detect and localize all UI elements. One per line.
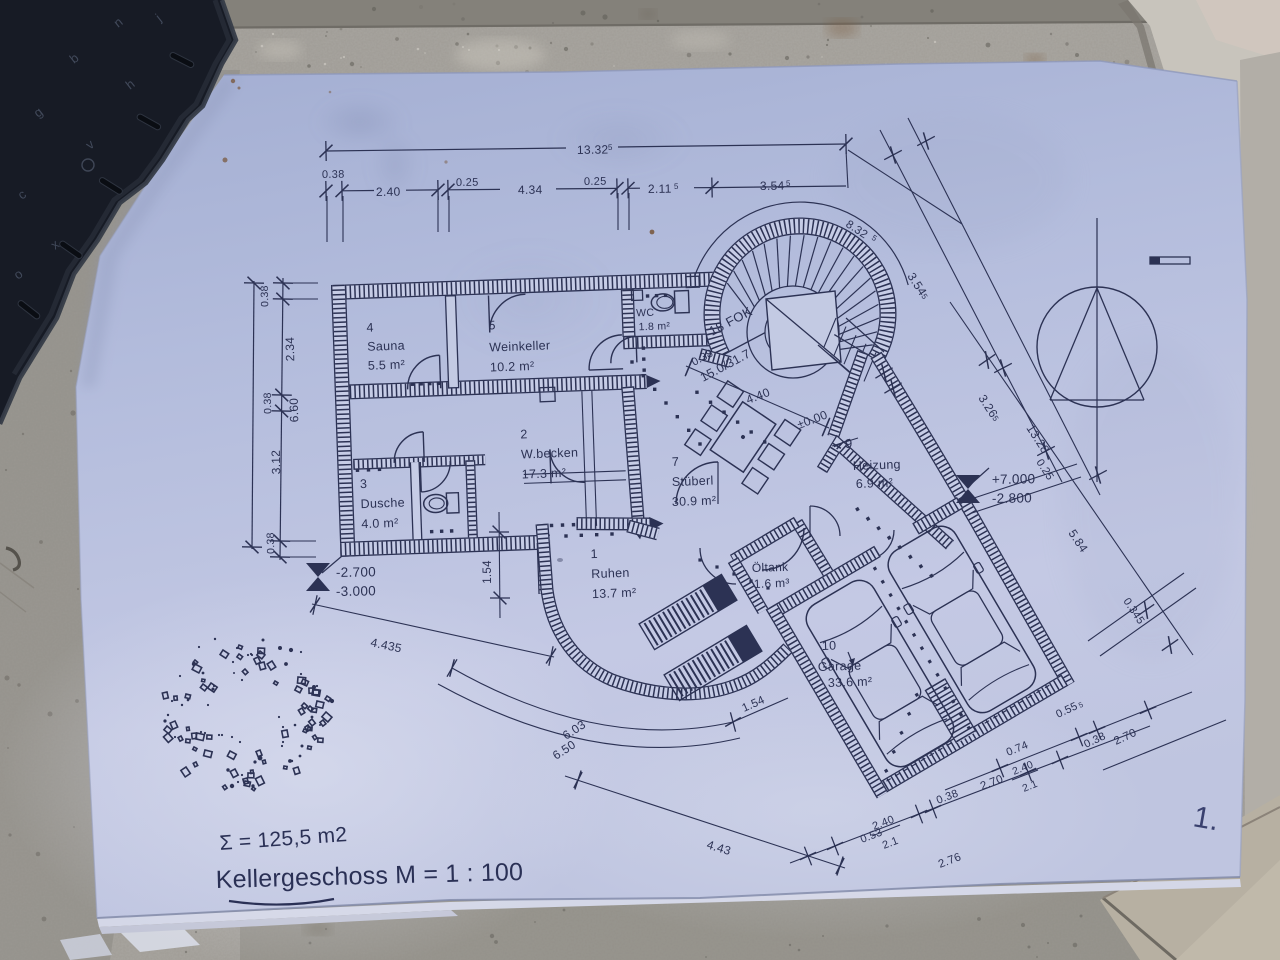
svg-text:5.5 m²: 5.5 m² [368, 357, 406, 372]
svg-text:33.6 m²: 33.6 m² [828, 674, 873, 690]
svg-text:4: 4 [366, 321, 374, 335]
svg-text:2: 2 [520, 427, 528, 441]
svg-text:2.11: 2.11 [648, 182, 672, 196]
svg-text:0.38: 0.38 [322, 169, 345, 181]
svg-text:0.38: 0.38 [259, 285, 271, 307]
svg-text:Garage: Garage [818, 658, 862, 674]
svg-text:10.2 m²: 10.2 m² [490, 359, 535, 375]
svg-text:9: 9 [845, 436, 853, 451]
svg-text:2.40: 2.40 [376, 185, 401, 199]
svg-text:0.25: 0.25 [584, 176, 607, 188]
svg-text:6.9 m²: 6.9 m² [856, 476, 894, 491]
svg-text:Heizung: Heizung [853, 457, 901, 473]
svg-text:1.6 m³: 1.6 m³ [754, 576, 790, 591]
svg-text:-2.800: -2.800 [992, 490, 1032, 506]
svg-text:W.becken: W.becken [521, 445, 579, 461]
svg-text:17.3 m²: 17.3 m² [521, 466, 566, 482]
svg-text:13.7 m²: 13.7 m² [592, 586, 637, 602]
svg-text:Stüberl: Stüberl [672, 474, 714, 489]
svg-text:Ruhen: Ruhen [591, 566, 630, 581]
svg-text:3.12: 3.12 [269, 450, 283, 475]
svg-text:0.38: 0.38 [262, 392, 274, 414]
svg-text:Weinkeller: Weinkeller [489, 338, 551, 354]
svg-text:30.9 m²: 30.9 m² [672, 493, 717, 509]
svg-text:1.54: 1.54 [482, 560, 494, 584]
svg-text:5: 5 [674, 182, 679, 191]
svg-text:0.25: 0.25 [456, 177, 479, 189]
svg-text:Sauna: Sauna [367, 338, 405, 353]
svg-text:3.54: 3.54 [760, 179, 785, 193]
svg-text:5: 5 [488, 318, 496, 332]
svg-text:4.0 m²: 4.0 m² [361, 516, 399, 531]
svg-text:5: 5 [786, 179, 791, 188]
svg-text:WC: WC [636, 307, 655, 320]
svg-text:2.34: 2.34 [283, 337, 297, 362]
svg-text:-2.700: -2.700 [336, 564, 376, 580]
svg-text:1: 1 [590, 547, 598, 561]
svg-text:10: 10 [822, 639, 837, 653]
svg-text:7: 7 [672, 455, 680, 469]
svg-text:0.38: 0.38 [265, 532, 277, 554]
svg-text:5: 5 [608, 143, 613, 152]
svg-text:-3.000: -3.000 [336, 583, 376, 599]
svg-text:13.32: 13.32 [577, 142, 609, 157]
svg-text:6.60: 6.60 [287, 398, 301, 423]
svg-text:3: 3 [360, 477, 368, 491]
svg-text:4.34: 4.34 [518, 183, 543, 197]
svg-text:Dusche: Dusche [360, 496, 405, 512]
svg-text:1.8 m²: 1.8 m² [638, 320, 670, 333]
svg-text:Öltank: Öltank [752, 560, 790, 575]
